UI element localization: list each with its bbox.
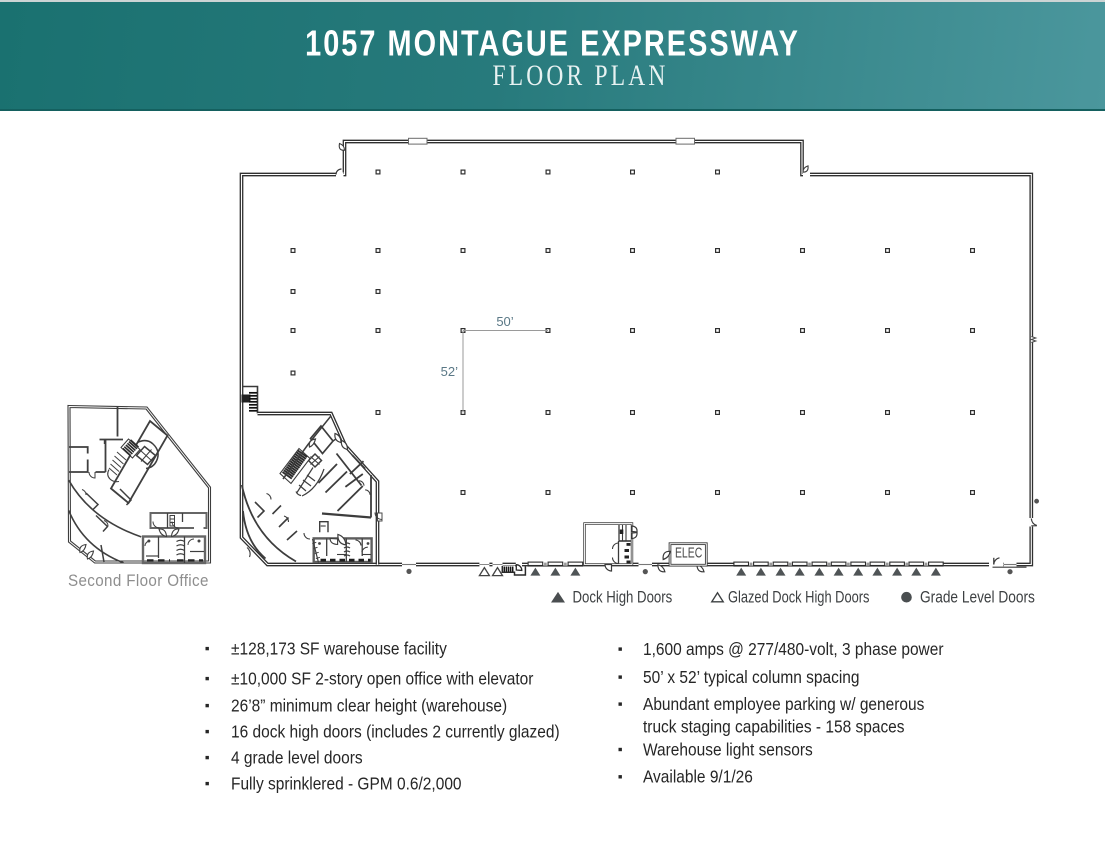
svg-text:16 dock high doors (includes 2: 16 dock high doors (includes 2 currently… (231, 723, 560, 742)
svg-text:±128,173 SF warehouse facility: ±128,173 SF warehouse facility (231, 640, 448, 659)
svg-text:Fully sprinklered - GPM 0.6/2,: Fully sprinklered - GPM 0.6/2,000 (231, 775, 462, 794)
svg-text:Available 9/1/26: Available 9/1/26 (643, 768, 753, 787)
svg-text:50’ x 52’ typical column spaci: 50’ x 52’ typical column spacing (643, 668, 860, 687)
svg-text:26’8” minimum clear height (wa: 26’8” minimum clear height (warehouse) (231, 697, 507, 716)
svg-text:±10,000 SF 2-story open office: ±10,000 SF 2-story open office with elev… (231, 670, 534, 689)
svg-text:truck staging capabilities - 1: truck staging capabilities - 158 spaces (643, 718, 905, 737)
svg-text:4 grade level doors: 4 grade level doors (231, 749, 363, 768)
svg-text:Abundant employee parking w/ g: Abundant employee parking w/ generous (643, 695, 924, 714)
svg-text:Dock High Doors: Dock High Doors (573, 588, 673, 607)
svg-text:ELEC: ELEC (675, 545, 702, 561)
svg-text:Glazed Dock High Doors: Glazed Dock High Doors (728, 589, 869, 607)
svg-text:1,600 amps @ 277/480-volt, 3 p: 1,600 amps @ 277/480-volt, 3 phase power (643, 640, 944, 659)
svg-text:Grade Level Doors: Grade Level Doors (920, 588, 1035, 606)
svg-text:FLOOR PLAN: FLOOR PLAN (492, 59, 668, 92)
svg-text:1057 MONTAGUE EXPRESSWAY: 1057 MONTAGUE EXPRESSWAY (305, 24, 800, 64)
svg-text:Second Floor Office: Second Floor Office (68, 572, 209, 590)
svg-text:Warehouse light sensors: Warehouse light sensors (643, 741, 813, 760)
svg-text:50’: 50’ (496, 314, 513, 329)
svg-text:52’: 52’ (441, 364, 458, 379)
